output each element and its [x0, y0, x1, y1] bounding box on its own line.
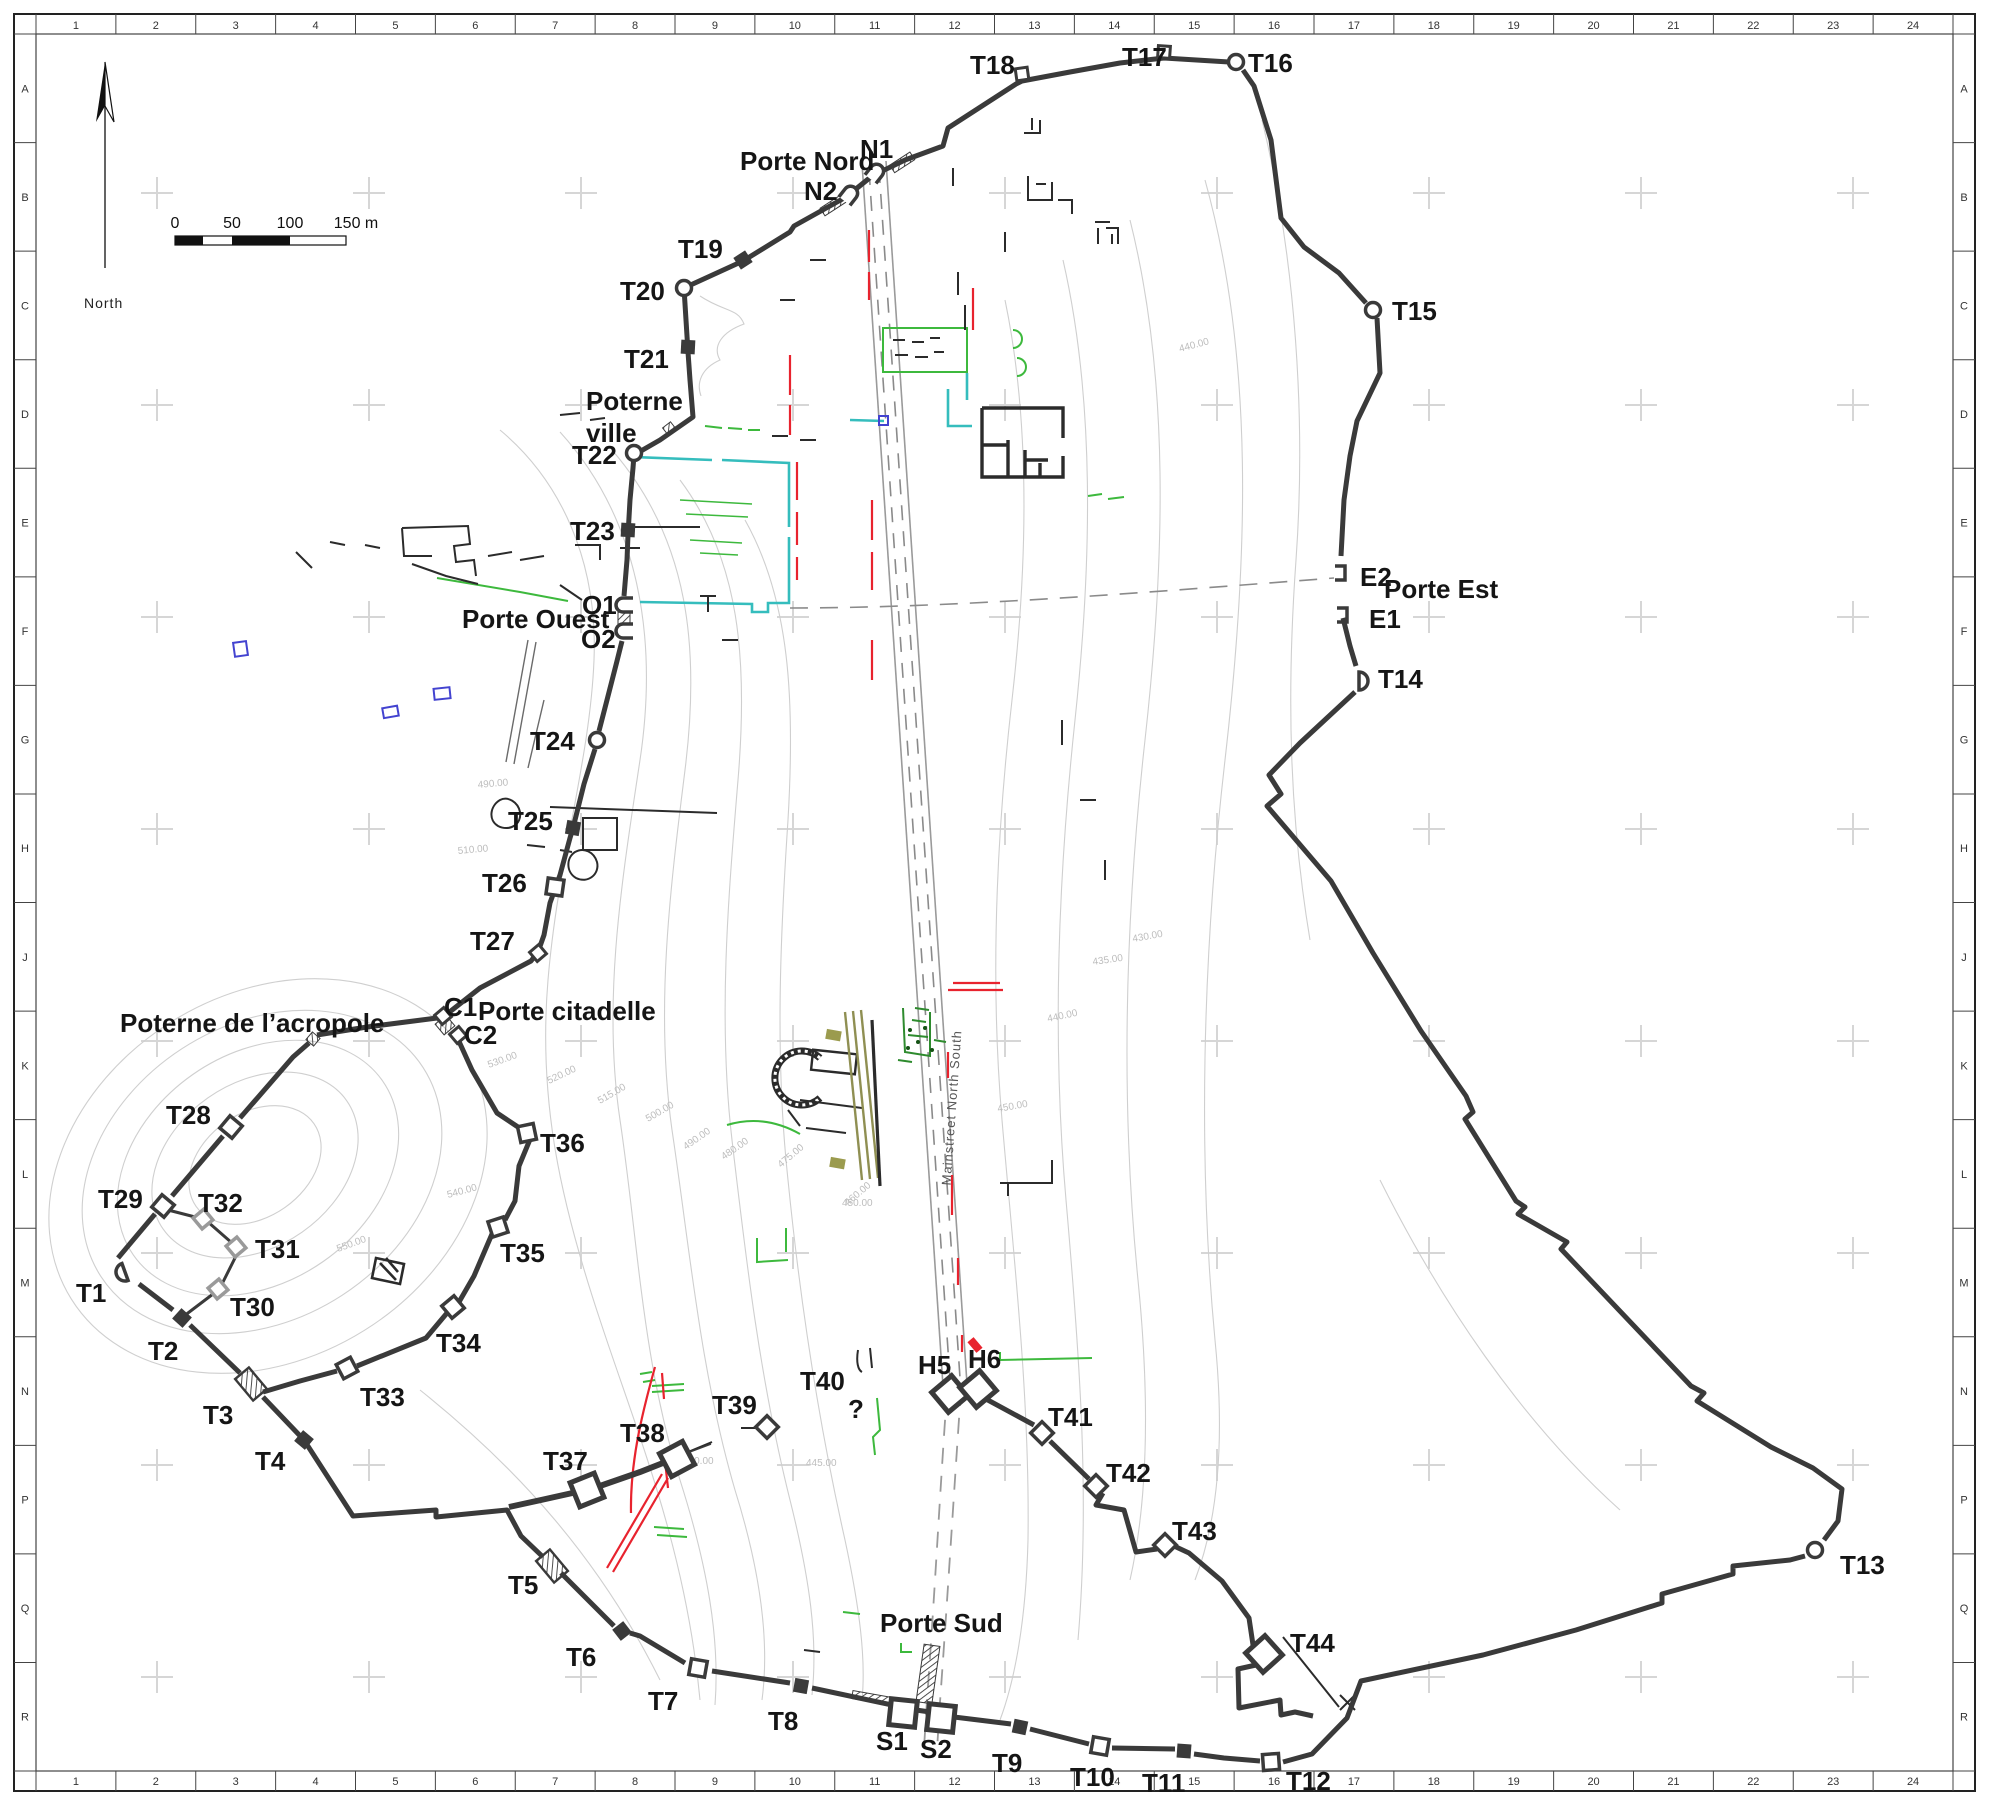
gate-label-porte-citadelle: Porte citadelle — [478, 996, 656, 1026]
grid-col-label: 2 — [153, 1776, 159, 1788]
tower-label-T26: T26 — [482, 868, 527, 898]
contour-elevation-label: 430.00 — [1132, 929, 1164, 945]
grid-row-label: Q — [21, 1603, 30, 1615]
tower-label-T32: T32 — [198, 1188, 243, 1218]
grid-col-label: 12 — [948, 1776, 960, 1788]
contour-elevation-label: 490.00 — [477, 777, 509, 791]
scale-bar-label: 100 — [277, 215, 304, 232]
tower-label-T33: T33 — [360, 1382, 405, 1412]
scale-bar-label: 0 — [171, 215, 180, 232]
scale-bar-label: 50 — [223, 215, 241, 232]
ruins-mid — [700, 596, 1105, 1196]
tower-label-T35: T35 — [500, 1238, 545, 1268]
tower-label-T5: T5 — [508, 1570, 538, 1600]
grid-row-label: L — [22, 1169, 28, 1181]
gate-label-porte-ouest: Porte Ouest — [462, 604, 610, 634]
tower-label-T40: T40 — [800, 1366, 845, 1396]
porte-nord-hatch-2 — [890, 152, 915, 173]
tower-marker-T1 — [113, 1264, 128, 1284]
gate-label-porte-sud: Porte Sud — [880, 1608, 1003, 1638]
grid-row-label: N — [21, 1386, 29, 1398]
map-frame: 1122334455667788991010111112121313141415… — [14, 14, 1975, 1791]
tower-marker-T15 — [1366, 303, 1381, 318]
tower-label-T13: T13 — [1840, 1550, 1885, 1580]
grid-row-label: Q — [1960, 1603, 1969, 1615]
contour-elevation-label: 445.00 — [806, 1458, 837, 1469]
tower-marker-E2 — [1335, 566, 1345, 580]
tower-marker-T28 — [220, 1116, 243, 1139]
tower-marker-T36 — [518, 1124, 537, 1143]
grid-row-label: C — [1960, 300, 1968, 312]
tower-label-T18: T18 — [970, 50, 1015, 80]
grid-col-label: 8 — [632, 20, 638, 32]
main-street-west-edge — [862, 163, 943, 1386]
grid-row-label: P — [1960, 1495, 1967, 1507]
tower-label-N2: N2 — [804, 176, 837, 206]
archaeological-site-map: 1122334455667788991010111112121313141415… — [0, 0, 1989, 1805]
grid-col-label: 10 — [789, 20, 801, 32]
tower-marker-O1 — [616, 598, 633, 612]
tower-label-Q: ? — [848, 1394, 864, 1424]
tower-label-T3: T3 — [203, 1400, 233, 1430]
tower-label-T23: T23 — [570, 516, 615, 546]
north-arrow: North — [84, 62, 123, 311]
grid-row-label: E — [1960, 518, 1967, 530]
tower-marker-T16 — [1229, 55, 1244, 70]
tower-marker-T25 — [565, 820, 581, 836]
tower-label-T8: T8 — [768, 1706, 798, 1736]
grid-col-label: 9 — [712, 1776, 718, 1788]
grid-col-label: 21 — [1667, 20, 1679, 32]
contour-elevation-label: 520.00 — [546, 1064, 579, 1087]
contour-elevation-label: 530.00 — [486, 1050, 519, 1071]
grid-col-label: 13 — [1028, 20, 1040, 32]
grid-row-label: F — [1961, 626, 1968, 638]
grid-col-label: 16 — [1268, 1776, 1280, 1788]
tower-marker-T21 — [681, 340, 696, 355]
site-plan-page: 1122334455667788991010111112121313141415… — [0, 0, 1989, 1805]
ruins-west-of-wall — [527, 807, 717, 852]
grid-row-label: D — [21, 409, 29, 421]
grid-col-label: 10 — [789, 1776, 801, 1788]
scale-bar: 050100150 m — [171, 215, 379, 245]
grid-col-label: 7 — [552, 20, 558, 32]
grid-col-label: 4 — [313, 1776, 319, 1788]
contour-elevation-label: 540.00 — [446, 1182, 479, 1201]
contour-elevation-label: 490.00 — [681, 1126, 713, 1153]
north-label: North — [84, 295, 123, 311]
grid-row-label: B — [21, 192, 28, 204]
grid-row-label: R — [21, 1712, 29, 1724]
grid-col-label: 20 — [1587, 20, 1599, 32]
contour-elevation-label: 480.00 — [719, 1136, 751, 1163]
contour-elevation-label: 475.00 — [776, 1142, 807, 1170]
grid-col-label: 1 — [73, 1776, 79, 1788]
grid-col-label: 11 — [869, 20, 880, 32]
main-street-east-edge — [886, 161, 967, 1384]
tower-markers — [113, 46, 1822, 1771]
contour-elevation-label: 440.00 — [1046, 1008, 1079, 1025]
contour-elevation-label: 510.00 — [457, 843, 489, 857]
tower-marker-T7 — [689, 1659, 708, 1678]
tower-label-H6: H6 — [968, 1344, 1001, 1374]
tower-label-T44: T44 — [1290, 1628, 1335, 1658]
grid-col-label: 7 — [552, 1776, 558, 1788]
tower-label-T11: T11 — [1142, 1768, 1185, 1798]
tower-label-C1: C1 — [444, 992, 477, 1022]
tower-label-T37: T37 — [543, 1446, 588, 1476]
grid-row-label: L — [1961, 1169, 1967, 1181]
gate-label-poterne-ville-1: Poterne — [586, 386, 683, 416]
south-road-dash-2 — [937, 1390, 961, 1750]
grid-col-label: 19 — [1508, 20, 1520, 32]
grid-row-label: B — [1960, 192, 1967, 204]
grid-col-label: 4 — [313, 20, 319, 32]
grid-col-label: 1 — [73, 20, 79, 32]
grid-row-label: H — [1960, 843, 1968, 855]
gate-label-porte-est: Porte Est — [1384, 574, 1498, 604]
tower-label-T27: T27 — [470, 926, 515, 956]
grid-row-label: M — [20, 1277, 29, 1289]
city-wall — [118, 58, 1842, 1762]
tower-label-T1: T1 — [76, 1278, 106, 1308]
grid-col-label: 17 — [1348, 20, 1360, 32]
grid-col-label: 5 — [392, 1776, 398, 1788]
tower-label-T6: T6 — [566, 1642, 596, 1672]
contour-elevation-label: 440.00 — [1178, 336, 1211, 355]
tower-marker-T35 — [488, 1217, 508, 1237]
tower-label-T15: T15 — [1392, 296, 1437, 326]
tower-label-T21: T21 — [624, 344, 669, 374]
tower-label-T36: T36 — [540, 1128, 585, 1158]
survey-cross-grid — [141, 177, 1869, 1693]
north-arrow-head-solid — [96, 62, 105, 122]
tower-label-T34: T34 — [436, 1328, 481, 1358]
tower-label-T31: T31 — [255, 1234, 300, 1264]
basilica-interior — [893, 338, 944, 357]
grid-col-label: 8 — [632, 1776, 638, 1788]
tower-label-T39: T39 — [712, 1390, 757, 1420]
grid-col-label: 6 — [472, 1776, 478, 1788]
grid-col-label: 12 — [948, 20, 960, 32]
grid-col-label: 9 — [712, 20, 718, 32]
ruler-labels: 1122334455667788991010111112121313141415… — [20, 20, 1968, 1788]
features-cyan — [634, 373, 972, 612]
grid-col-label: 18 — [1428, 20, 1440, 32]
ruins-misc-south — [634, 527, 1355, 1710]
tower-label-T29: T29 — [98, 1184, 143, 1214]
grid-row-label: A — [1960, 83, 1968, 95]
citadel-wall — [263, 1037, 531, 1392]
tower-label-T30: T30 — [230, 1292, 275, 1322]
grid-col-label: 2 — [153, 20, 159, 32]
tower-label-T16: T16 — [1248, 48, 1293, 78]
grid-row-label: M — [1959, 1277, 1968, 1289]
grid-row-label: D — [1960, 409, 1968, 421]
citadel-church — [372, 1258, 404, 1284]
grid-col-label: 5 — [392, 20, 398, 32]
grid-col-label: 21 — [1667, 1776, 1679, 1788]
gate-label-poterne-ville-2: ville — [586, 418, 637, 448]
tower-marker-S1 — [889, 1699, 918, 1728]
north-arrow-head-open — [105, 62, 114, 122]
tower-marker-T14 — [1359, 672, 1368, 690]
gate-label-poterne-acropole: Poterne de l’acropole — [120, 1008, 384, 1038]
tower-label-T41: T41 — [1048, 1402, 1093, 1432]
grid-col-label: 11 — [869, 1776, 880, 1788]
grid-row-label: G — [21, 735, 30, 747]
tower-marker-T23 — [621, 523, 636, 538]
tower-marker-T10 — [1091, 1737, 1110, 1756]
grid-row-label: F — [22, 626, 29, 638]
tower-label-T7: T7 — [648, 1686, 678, 1716]
contour-elevation-label: 435.00 — [1092, 953, 1124, 968]
tower-marker-T20 — [677, 281, 692, 296]
tower-marker-O2 — [616, 624, 633, 638]
grid-col-label: 15 — [1188, 20, 1200, 32]
ruins-black — [296, 118, 1355, 1710]
grid-col-label: 18 — [1428, 1776, 1440, 1788]
tower-label-T42: T42 — [1106, 1458, 1151, 1488]
grid-col-label: 15 — [1188, 1776, 1200, 1788]
tower-marker-T12 — [1262, 1753, 1279, 1770]
main-street-dash-2 — [879, 168, 960, 1378]
tower-label-T14: T14 — [1378, 664, 1423, 694]
grid-row-label: G — [1960, 735, 1969, 747]
grid-row-label: E — [21, 518, 28, 530]
contour-elevation-label: 500.00 — [644, 1100, 676, 1125]
grid-col-label: 24 — [1907, 20, 1919, 32]
tower-label-S1: S1 — [876, 1726, 908, 1756]
tower-marker-T9 — [1012, 1719, 1029, 1736]
grid-col-label: 23 — [1827, 1776, 1839, 1788]
contour-elevation-label: 515.00 — [596, 1082, 628, 1107]
contour-elevation-labels: 440.00435.00430.00440.00450.00450.00445.… — [335, 336, 1210, 1469]
grid-col-label: 19 — [1508, 1776, 1520, 1788]
grid-col-label: 6 — [472, 20, 478, 32]
tower-label-T20: T20 — [620, 276, 665, 306]
grid-row-label: N — [1960, 1386, 1968, 1398]
tower-label-T38: T38 — [620, 1418, 665, 1448]
tower-marker-T13 — [1808, 1543, 1823, 1558]
tower-marker-T26 — [546, 878, 564, 896]
tower-label-T24: T24 — [530, 726, 575, 756]
tower-label-H5: H5 — [918, 1350, 951, 1380]
grid-row-label: J — [22, 952, 28, 964]
grid-col-label: 14 — [1108, 20, 1120, 32]
ruler-ticks — [14, 14, 1975, 1791]
tower-label-T19: T19 — [678, 234, 723, 264]
tower-label-T10: T10 — [1070, 1762, 1115, 1792]
gate-label-porte-nord: Porte Nord — [740, 146, 874, 176]
tower-label-E1: E1 — [1369, 604, 1401, 634]
porte-sud-hatch — [916, 1644, 940, 1704]
grid-col-label: 24 — [1907, 1776, 1919, 1788]
enceinte-principale — [118, 58, 1842, 1762]
basilica-outline — [883, 328, 967, 372]
tower-marker-T24 — [590, 733, 605, 748]
grid-col-label: 3 — [233, 1776, 239, 1788]
scale-bar-label: 150 m — [334, 215, 378, 232]
grid-row-label: J — [1961, 952, 1967, 964]
tower-label-T12: T12 — [1286, 1766, 1331, 1796]
grid-col-label: 22 — [1747, 1776, 1759, 1788]
tower-label-T2: T2 — [148, 1336, 178, 1366]
grid-row-label: R — [1960, 1712, 1968, 1724]
grid-col-label: 23 — [1827, 20, 1839, 32]
grid-col-label: 22 — [1747, 20, 1759, 32]
tower-label-T4: T4 — [255, 1446, 286, 1476]
grid-row-label: H — [21, 843, 29, 855]
grid-col-label: 20 — [1587, 1776, 1599, 1788]
grid-col-label: 17 — [1348, 1776, 1360, 1788]
tower-marker-T33 — [336, 1357, 358, 1379]
grid-row-label: K — [21, 1060, 29, 1072]
grid-row-label: C — [21, 300, 29, 312]
grid-col-label: 3 — [233, 20, 239, 32]
grid-row-label: A — [21, 83, 29, 95]
map-labels: T1T2T3T4T5T6T7T8T9T10T11T12T13T14T15T16T… — [76, 42, 1885, 1798]
tower-label-T17: T17 — [1122, 42, 1167, 72]
grid-row-label: P — [21, 1495, 28, 1507]
grid-col-label: 16 — [1268, 20, 1280, 32]
tower-marker-T37 — [570, 1473, 604, 1507]
tower-marker-T18 — [1015, 67, 1029, 81]
tower-marker-S2 — [927, 1704, 956, 1733]
tower-marker-T11 — [1177, 1744, 1192, 1759]
tower-label-T28: T28 — [166, 1100, 211, 1130]
tower-label-T43: T43 — [1172, 1516, 1217, 1546]
grid-row-label: K — [1960, 1060, 1968, 1072]
contour-elevation-label: 450.00 — [997, 1099, 1029, 1115]
tower-label-T25: T25 — [508, 806, 553, 836]
grid-col-label: 13 — [1028, 1776, 1040, 1788]
tower-label-T9: T9 — [992, 1748, 1022, 1778]
tower-marker-T8 — [793, 1678, 809, 1694]
tower-label-S2: S2 — [920, 1734, 952, 1764]
